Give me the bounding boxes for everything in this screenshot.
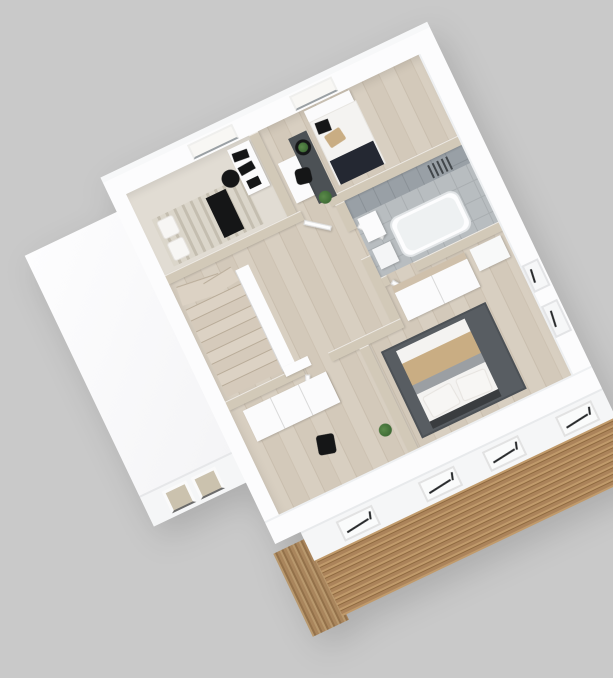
window-sash-line	[429, 479, 451, 494]
window-sash-line	[369, 511, 372, 519]
window-sash-line	[515, 442, 518, 450]
window-sash-line	[347, 518, 369, 533]
window-sash-line	[451, 472, 454, 480]
window-sash-line	[550, 311, 557, 328]
window-sash-line	[530, 269, 536, 283]
window-sash-line	[588, 407, 591, 415]
chair	[316, 433, 337, 456]
window-sash-line	[493, 448, 515, 463]
window-sash-line	[566, 413, 588, 428]
